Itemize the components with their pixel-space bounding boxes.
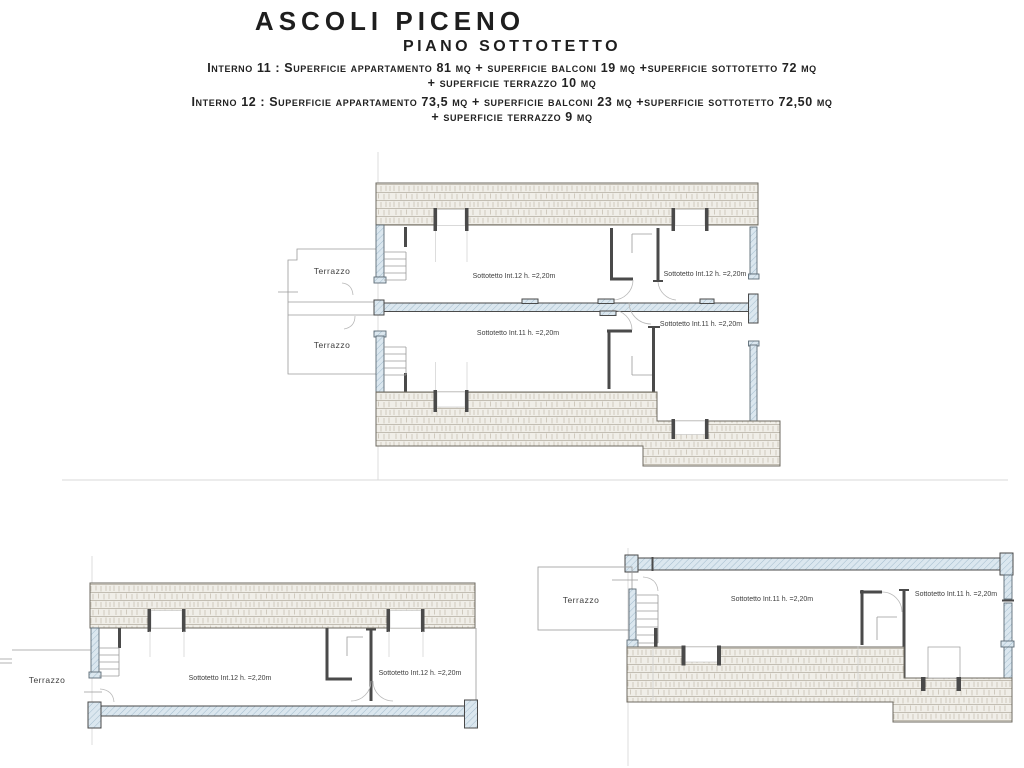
window-well	[928, 647, 960, 678]
main-floor-plan: Terrazzo Terrazzo Sottotetto Int.12 h. =…	[62, 152, 1008, 480]
top-roof-band	[376, 183, 758, 231]
entry-arrow	[344, 316, 355, 329]
closet-outline	[877, 617, 897, 640]
closet-outline	[632, 356, 652, 375]
door-swing-arc	[351, 681, 371, 701]
door-swing-arc	[613, 280, 633, 300]
room-label-int12-left: Sottotetto Int.12 h. =2,20m	[473, 273, 556, 280]
entry-arrow	[643, 577, 658, 591]
right-wall	[1001, 575, 1014, 678]
walls	[89, 628, 476, 701]
room-label-left: Sottotetto Int.11 h. =2,20m	[731, 596, 813, 603]
drawing-sheet: Terrazzo Terrazzo Sottotetto Int.12 h. =…	[0, 0, 1024, 768]
room-label-int11-right: Sottotetto Int.11 h. =2,20m	[660, 321, 742, 328]
entry-arrow	[342, 283, 353, 295]
page-subtitle: PIANO SOTTOTETTO	[0, 38, 1024, 56]
door-swing-arc	[373, 681, 393, 701]
top-slab	[625, 553, 1013, 575]
room-label-right: Sottotetto Int.12 h. =2,20m	[379, 670, 462, 677]
terrazzo-label: Terrazzo	[29, 675, 66, 685]
central-divider-wall	[374, 294, 758, 323]
roof-band	[627, 646, 1012, 723]
room-label-left: Sottotetto Int.12 h. =2,20m	[189, 675, 272, 682]
unit-12-walls	[342, 225, 759, 300]
terrazzo-label: Terrazzo	[563, 595, 600, 605]
plan-interno-12-section: Terrazzo Sottotetto Int.12 h. =2,20m Sot…	[0, 556, 478, 745]
interno-11-surface-line-1: Interno 11 : Superficie appartamento 81 …	[0, 61, 1024, 75]
plan-interno-11-section: Terrazzo Sottotetto Int.11 h. =2,20m Sot…	[538, 548, 1014, 766]
closet-outline	[632, 234, 652, 253]
roof-band	[90, 583, 475, 632]
closet-outline	[347, 637, 363, 656]
entry-arrow	[100, 689, 114, 702]
door-swing-arc	[658, 282, 676, 300]
stairs-upper	[384, 252, 406, 280]
terrazzo-upper-label: Terrazzo	[314, 266, 351, 276]
terrazzo-lower-label: Terrazzo	[314, 340, 351, 350]
door-swing-arc	[882, 592, 902, 612]
room-label-int11-left: Sottotetto Int.11 h. =2,20m	[477, 330, 559, 337]
interno-12-surface-line-1: Interno 12 : Superficie appartamento 73,…	[0, 95, 1024, 109]
room-label-int12-right: Sottotetto Int.12 h. =2,20m	[664, 271, 747, 278]
floor-slab	[88, 700, 478, 728]
stairs-lower	[384, 347, 406, 375]
interno-12-surface-line-2: + superficie terrazzo 9 mq	[0, 110, 1024, 124]
bottom-roof-band	[376, 390, 780, 466]
room-label-right: Sottotetto Int.11 h. =2,20m	[915, 591, 997, 598]
page-title: ASCOLI PICENO	[0, 6, 780, 37]
interno-11-surface-line-2: + superficie terrazzo 10 mq	[0, 76, 1024, 90]
stairs	[99, 648, 119, 676]
